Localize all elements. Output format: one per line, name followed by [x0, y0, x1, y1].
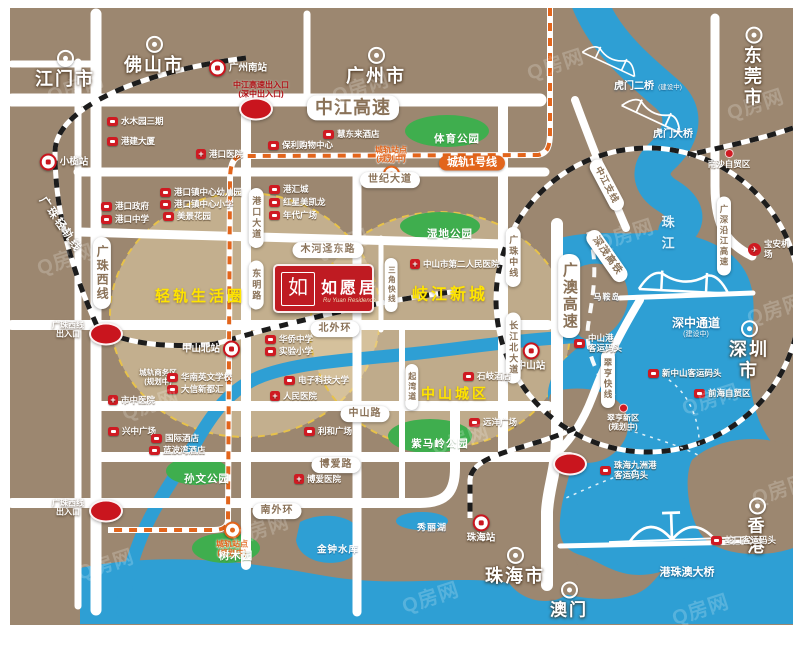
poi-icon [108, 426, 119, 435]
station-zhongshan-north-label: 中山北站 [182, 343, 220, 354]
poi-hongxing-meikailong-label: 红星美凯龙 [283, 197, 326, 207]
road-north-ring-label: 北外环 [319, 323, 352, 334]
rail-shenmao-hsr-label: 深茂高铁 [590, 235, 624, 277]
poi-huidonglai-hotel: 慧东来酒店 [323, 129, 380, 139]
poi-icon [265, 334, 276, 343]
poi-niandai-plaza: 年代广场 [269, 210, 317, 220]
road-shiji-avenue: 世纪大道 [360, 172, 420, 188]
road-dongming-road: 东明路 [249, 261, 264, 310]
city-foshan-label: 佛山市 [124, 55, 184, 76]
watermark: Q房网 [523, 40, 588, 86]
poi-huaqiao-middle: 华侨中学 [265, 334, 313, 344]
road-south-ring: 南外环 [253, 503, 302, 519]
road-muhejing-east: 木河迳东路 [293, 242, 364, 258]
park-sunwen-label: 孙文公园 [184, 473, 230, 485]
interchange-guangao [553, 453, 587, 476]
project-logo: 如 如愿居 Ru Yuan Residence [273, 264, 374, 313]
red-dot-icon [724, 149, 733, 158]
poi-niandai-plaza-label: 年代广场 [283, 210, 317, 220]
poi-gangkou-gov: 港口政府 [101, 201, 149, 211]
bridge-humen2-label: 虎门二桥 [614, 81, 654, 93]
metro-station-gangkou-label: 城轨站点 (规划中) [375, 146, 407, 165]
road-dongming-road-label: 东明路 [251, 269, 261, 302]
poi-second-hospital: +中山市第二人民医院 [410, 259, 500, 269]
road-cuiheng-express-label: 翠亨快线 [603, 358, 613, 400]
city-foshan: 佛山市 [124, 36, 184, 76]
road-zhongjiang-expwy-label: 中江高速 [315, 97, 391, 117]
park-shumuyuan-label: 树木园 [219, 550, 254, 562]
metro-line1: 城轨1号线 [439, 156, 505, 171]
poi-daxin-mall: 大信新都汇 [167, 384, 224, 394]
poi-gangkou-kindergarten-label: 港口镇中心幼儿园 [174, 187, 242, 197]
poi-uestc-label: 电子科技大学 [298, 375, 349, 385]
poi-icon [160, 199, 171, 208]
note-cuiheng-newarea: 翠亨新区 (规划中) [607, 404, 639, 433]
bridge-shenzhong-status: (建设中) [683, 331, 709, 339]
note-nansha-ftz-label: 南沙自贸区 [708, 159, 751, 169]
poi-icon [284, 375, 295, 384]
bridge-humen2-status: (建设中) [658, 84, 682, 92]
poi-uestc: 电子科技大学 [284, 375, 349, 385]
note-guangzhuxi-exit-n-label: 广珠西线 出入口 [52, 321, 84, 339]
poi-renmin-hospital-label: 人民医院 [283, 391, 317, 401]
water-pearl-river-label: 珠江 [660, 215, 675, 257]
area-lightrail-circle-label: 轻轨生活圈 [155, 288, 245, 305]
bridge-humen2-label-label: 虎门二桥 [614, 81, 654, 92]
poi-shekou-ferry-label: 蛇口客运码头 [725, 535, 776, 545]
station-zhuhai: 珠海站 [467, 514, 496, 543]
park-shidi: 湿地公园 [427, 228, 473, 240]
bridge-humen-label-label: 虎门大桥 [653, 129, 693, 140]
park-shumuyuan: 树木园 [219, 550, 254, 562]
poi-yuanyang-plaza-label: 远洋广场 [483, 417, 517, 427]
road-zhongshan-road-label: 中山路 [349, 408, 382, 419]
city-icon [507, 547, 524, 564]
poi-gangkou-middle-label: 港口中学 [115, 214, 149, 224]
station-guangzhou-south: 广州南站 [209, 60, 267, 77]
water-jinzhong-reservoir: 金钟水库 [317, 544, 359, 555]
road-north-ring: 北外环 [311, 321, 360, 337]
city-icon [746, 27, 763, 44]
poi-icon [101, 201, 112, 210]
road-changjiang-north-label: 长江北大道 [508, 321, 518, 376]
area-zhongshan-urban: 中山城区 [421, 386, 489, 403]
poi-lanbowan-hotel-label: 蓝波湾酒店 [163, 445, 206, 455]
road-sanjiao-express: 三角快线 [385, 258, 398, 312]
road-qiwan-road-label: 起湾道 [408, 372, 417, 402]
train-station-icon [223, 341, 240, 358]
poi-icon [600, 466, 611, 475]
city-icon [749, 497, 766, 514]
rail-guangzhu-light-label: 广珠轻轨线 [37, 195, 84, 255]
poi-icon [160, 187, 171, 196]
park-shidi-label: 湿地公园 [427, 228, 473, 240]
bridge-shenzhong-status-label: (建设中) [683, 331, 709, 338]
island-maan-label: 马鞍岛 [594, 292, 621, 301]
location-map-frame: 江门市佛山市广州市东莞市深圳市珠海市香港澳门广州南站小榄站中山北站中山站珠海站城… [0, 0, 800, 646]
poi-jiuzhou-ferry: 珠海九洲港 客运码头 [600, 460, 657, 480]
red-dot-icon [619, 404, 628, 413]
logo-monogram: 如 [281, 272, 315, 306]
city-guangzhou-label: 广州市 [346, 66, 406, 87]
note-cuiheng-newarea-label: 翠亨新区 (规划中) [607, 414, 639, 433]
city-zhuhai: 珠海市 [485, 547, 545, 587]
poi-meijing-garden: 美景花园 [163, 211, 211, 221]
rail-shenmao-hsr: 深茂高铁 [583, 227, 630, 285]
poi-english-school-label: 华南英文学校 [181, 372, 232, 382]
poi-icon [469, 417, 480, 426]
metro-line1-label: 城轨1号线 [447, 157, 497, 169]
poi-icon [269, 197, 280, 206]
poi-shiqi-hotel-label: 石岐酒店 [477, 371, 511, 381]
road-guangzhu-middle-label: 广珠中线 [508, 235, 518, 279]
city-jiangmen: 江门市 [35, 50, 95, 90]
note-zhongjiang-exit: 中江高速出入口 (深中出入口) [233, 81, 289, 100]
city-hongkong: 香港 [739, 497, 775, 556]
city-shenzhen-label: 深圳市 [727, 339, 771, 381]
poi-boai-hospital-label: 博爱医院 [307, 474, 341, 484]
train-station-icon [522, 342, 539, 359]
road-shiji-avenue-label: 世纪大道 [368, 174, 412, 185]
train-station-icon [40, 154, 57, 171]
poi-icon [694, 388, 705, 397]
poi-shekou-ferry: 蛇口客运码头 [711, 535, 776, 545]
road-sanjiao-express-label: 三角快线 [387, 266, 396, 304]
poi-icon [463, 371, 474, 380]
park-zimaling: 紫马岭公园 [411, 438, 469, 450]
poi-icon [167, 384, 178, 393]
road-guangshen-riverside: 广深沿江高速 [717, 197, 731, 276]
poi-shiqi-hotel: 石岐酒店 [463, 371, 511, 381]
station-zhongshan-label: 中山站 [517, 360, 546, 371]
area-qijiang-newtown-label: 岐江新城 [412, 287, 488, 304]
poi-icon [151, 433, 162, 442]
park-sunwen: 孙文公园 [184, 473, 230, 485]
park-tiyu: 体育公园 [434, 133, 480, 145]
water-xiuli-lake-label: 秀丽湖 [417, 523, 447, 533]
poi-gangkou-middle: 港口中学 [101, 214, 149, 224]
station-zhongshan-north: 中山北站 [182, 341, 240, 358]
poi-boai-hospital: +博爱医院 [294, 474, 341, 484]
airplane-icon: ✈ [748, 243, 761, 256]
poi-renmin-hospital: +人民医院 [270, 391, 317, 401]
station-zhongshan: 中山站 [517, 342, 546, 371]
poi-icon [323, 129, 334, 138]
poi-icon [265, 346, 276, 355]
park-tiyu-label: 体育公园 [434, 133, 480, 145]
poi-english-school: 华南英文学校 [167, 372, 232, 382]
poi-shiyan-primary: 实验小学 [265, 346, 313, 356]
poi-intl-hotel: 国际酒店 [151, 433, 199, 443]
city-icon [368, 47, 385, 64]
note-guangzhuxi-exit-s: 广珠西线 出入口 [52, 499, 84, 518]
poi-icon [648, 368, 659, 377]
island-maan: 马鞍岛 [594, 292, 621, 301]
poi-qianhai-ftz: 前海自贸区 [694, 388, 751, 398]
road-zhongjiang-branch-label: 中江支线 [593, 165, 621, 205]
bridge-hzmb-label-label: 港珠澳大桥 [660, 567, 715, 579]
city-dongguan-label: 东莞市 [735, 46, 774, 110]
park-zimaling-label: 紫马岭公园 [411, 438, 469, 450]
note-nansha-ftz: 南沙自贸区 [708, 149, 751, 169]
logo-title: 如愿居 [321, 274, 378, 298]
interchange-guangzhuxi-n [89, 323, 123, 346]
poi-ganghui-city: 港汇城 [269, 184, 309, 194]
poi-lihe-plaza-label: 利和广场 [318, 426, 352, 436]
city-icon [146, 36, 163, 53]
poi-baoan-airport-label: 宝安机场 [764, 239, 793, 259]
hospital-icon: + [270, 391, 280, 401]
road-zhongjiang-branch: 中江支线 [587, 157, 626, 213]
note-guangzhuxi-exit-s-label: 广珠西线 出入口 [52, 499, 84, 517]
location-map: 江门市佛山市广州市东莞市深圳市珠海市香港澳门广州南站小榄站中山北站中山站珠海站城… [10, 8, 793, 625]
poi-new-zhongshan-ferry: 新中山客运码头 [648, 368, 722, 378]
city-macau: 澳门 [550, 581, 588, 620]
hospital-icon: + [410, 259, 420, 269]
poi-shuimuyuan-label: 水木园三期 [121, 116, 164, 126]
labels-layer: 江门市佛山市广州市东莞市深圳市珠海市香港澳门广州南站小榄站中山北站中山站珠海站城… [10, 8, 793, 625]
interchange-zhongjiang [239, 98, 273, 121]
poi-huidonglai-hotel-label: 慧东来酒店 [337, 129, 380, 139]
bridge-humen2-status-label: (建设中) [658, 84, 682, 91]
poi-icon [269, 184, 280, 193]
poi-shiyan-primary-label: 实验小学 [279, 346, 313, 356]
poi-daxin-mall-label: 大信新都汇 [181, 384, 224, 394]
hospital-icon: + [196, 149, 206, 159]
poi-icon [107, 116, 118, 125]
road-qiwan-road: 起湾道 [405, 364, 418, 410]
poi-qianhai-ftz-label: 前海自贸区 [708, 388, 751, 398]
poi-icon [149, 445, 160, 454]
city-shenzhen: 深圳市 [727, 320, 771, 381]
area-lightrail-circle: 轻轨生活圈 [155, 288, 245, 306]
poi-gangkou-hospital-label: 港口医院 [209, 149, 243, 159]
road-boai-road-label: 博爱路 [320, 459, 353, 470]
road-cuiheng-express: 翠亨快线 [601, 350, 615, 408]
poi-shuimuyuan: 水木园三期 [107, 116, 164, 126]
poi-baoli-mall: 保利购物中心 [268, 140, 333, 150]
poi-huaqiao-middle-label: 华侨中学 [279, 334, 313, 344]
road-guangzhu-west: 广珠西线 [93, 237, 111, 309]
train-station-icon [209, 60, 226, 77]
city-jiangmen-label: 江门市 [35, 69, 95, 90]
poi-zhongshan-port: 中山港 客运码头 [574, 333, 622, 353]
road-gangkou-avenue: 港口大道 [249, 188, 264, 248]
station-guangzhou-south-label: 广州南站 [229, 62, 267, 73]
poi-meijing-garden-label: 美景花园 [177, 211, 211, 221]
city-dongguan: 东莞市 [735, 27, 774, 110]
poi-jiuzhou-ferry-label: 珠海九洲港 客运码头 [614, 460, 657, 480]
rail-guangzhu-light: 广珠轻轨线 [36, 195, 84, 256]
hospital-icon: + [108, 395, 118, 405]
bridge-hzmb-label: 港珠澳大桥 [660, 567, 715, 580]
poi-gangkou-primary: 港口镇中心小学 [160, 199, 234, 209]
poi-lanbowan-hotel: 蓝波湾酒店 [149, 445, 206, 455]
poi-icon [268, 140, 279, 149]
interchange-guangzhuxi-s [89, 500, 123, 523]
road-guangao-expwy-label: 广澳高速 [561, 262, 578, 330]
area-qijiang-newtown: 岐江新城 [412, 287, 488, 306]
poi-gangjian-tower-label: 港建大厦 [121, 136, 155, 146]
note-guangzhuxi-exit-n: 广珠西线 出入口 [52, 321, 84, 340]
road-zhongshan-road: 中山路 [341, 406, 390, 422]
road-south-ring-label: 南外环 [261, 505, 294, 516]
city-icon [561, 581, 578, 598]
city-icon [57, 50, 74, 67]
poi-ganghui-city-label: 港汇城 [283, 184, 309, 194]
bridge-shenzhong-label: 深中通道 [672, 316, 720, 330]
poi-lihe-plaza: 利和广场 [304, 426, 352, 436]
station-zhuhai-label: 珠海站 [467, 532, 496, 543]
poi-second-hospital-label: 中山市第二人民医院 [423, 259, 500, 269]
hospital-icon: + [294, 474, 304, 484]
poi-yuanyang-plaza: 远洋广场 [469, 417, 517, 427]
city-macau-label: 澳门 [550, 600, 588, 620]
poi-icon [163, 211, 174, 220]
poi-icon [304, 426, 315, 435]
bridge-shenzhong-label-label: 深中通道 [672, 316, 720, 330]
city-guangzhou: 广州市 [346, 47, 406, 87]
poi-baoan-airport: ✈宝安机场 [748, 239, 793, 259]
road-guangzhu-middle: 广珠中线 [506, 227, 521, 287]
metro-station-icon [224, 522, 241, 539]
logo-subtitle: Ru Yuan Residence [323, 298, 376, 304]
station-xiaolan: 小榄站 [40, 154, 89, 171]
water-jinzhong-reservoir-label: 金钟水库 [317, 544, 359, 555]
road-zhongjiang-expwy: 中江高速 [307, 95, 399, 120]
poi-icon [107, 136, 118, 145]
poi-gangkou-primary-label: 港口镇中心小学 [174, 199, 234, 209]
poi-icon [711, 535, 722, 544]
road-guangshen-riverside-label: 广深沿江高速 [719, 205, 729, 268]
poi-xingzhong-plaza: 兴中广场 [108, 426, 156, 436]
poi-baoli-mall-label: 保利购物中心 [282, 140, 333, 150]
poi-tcm-hospital-label: 市中医院 [121, 395, 155, 405]
watermark: Q房网 [668, 585, 733, 625]
road-guangzhu-west-label: 广珠西线 [95, 245, 109, 301]
poi-icon [101, 214, 112, 223]
road-muhejing-east-label: 木河迳东路 [301, 244, 356, 255]
bridge-humen-label: 虎门大桥 [653, 129, 693, 141]
poi-icon [269, 210, 280, 219]
note-zhongjiang-exit-label: 中江高速出入口 (深中出入口) [233, 81, 289, 99]
poi-gangjian-tower: 港建大厦 [107, 136, 155, 146]
watermark: Q房网 [398, 573, 463, 619]
poi-zhongshan-port-label: 中山港 客运码头 [588, 333, 622, 353]
city-zhuhai-label: 珠海市 [485, 566, 545, 587]
station-xiaolan-label: 小榄站 [60, 156, 89, 167]
water-xiuli-lake: 秀丽湖 [417, 523, 447, 534]
poi-gangkou-gov-label: 港口政府 [115, 201, 149, 211]
road-boai-road: 博爱路 [312, 457, 361, 473]
poi-gangkou-kindergarten: 港口镇中心幼儿园 [160, 187, 242, 197]
road-gangkou-avenue-label: 港口大道 [251, 196, 261, 240]
poi-new-zhongshan-ferry-label: 新中山客运码头 [662, 368, 722, 378]
city-icon [741, 320, 758, 337]
poi-icon [574, 339, 585, 348]
area-zhongshan-urban-label: 中山城区 [421, 386, 489, 402]
poi-tcm-hospital: +市中医院 [108, 395, 155, 405]
watermark: Q房网 [73, 540, 138, 586]
train-station-icon [472, 514, 489, 531]
poi-gangkou-hospital: +港口医院 [196, 149, 243, 159]
water-pearl-river: 珠江 [659, 215, 674, 257]
poi-hongxing-meikailong: 红星美凯龙 [269, 197, 326, 207]
road-guangao-expwy: 广澳高速 [558, 254, 580, 338]
poi-intl-hotel-label: 国际酒店 [165, 433, 199, 443]
poi-icon [167, 372, 178, 381]
